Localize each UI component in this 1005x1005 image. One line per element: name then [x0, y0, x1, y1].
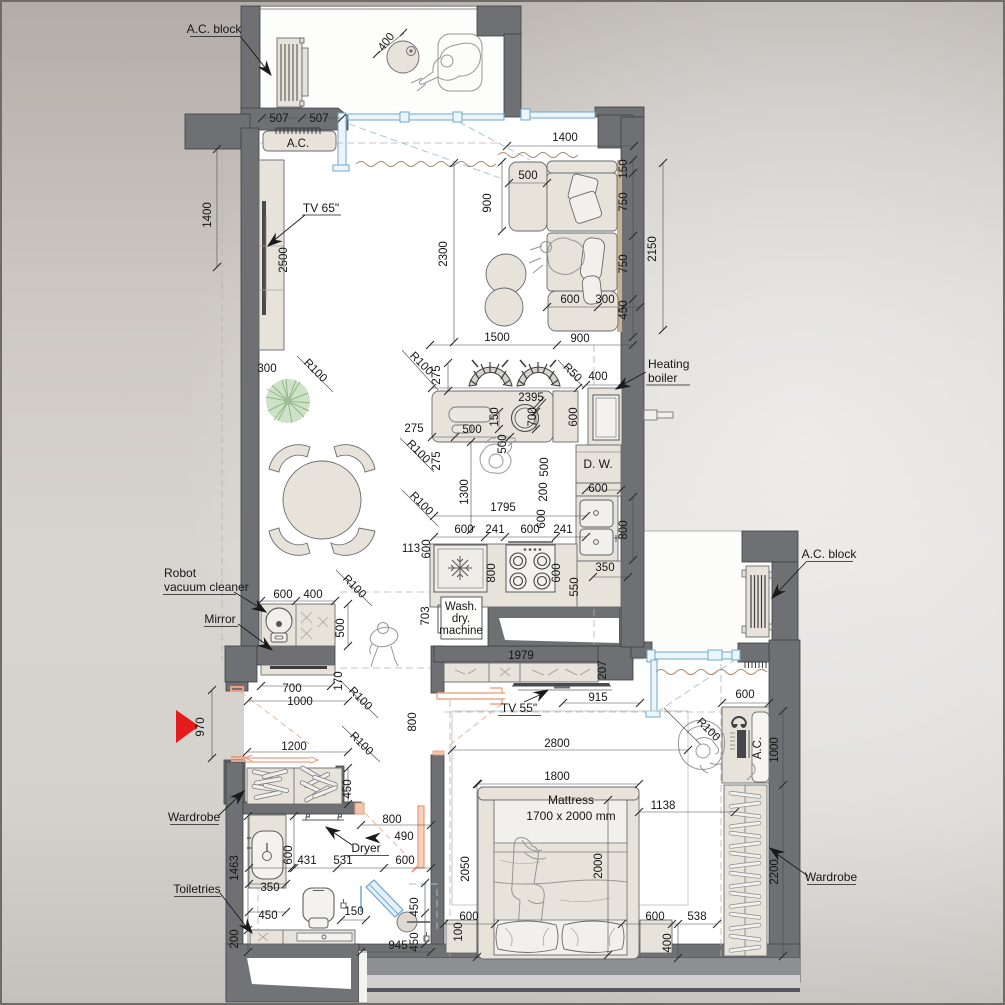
svg-text:431: 431: [297, 855, 316, 867]
svg-text:703: 703: [420, 606, 432, 625]
svg-text:2050: 2050: [460, 856, 472, 882]
svg-text:600: 600: [568, 407, 580, 426]
svg-text:600: 600: [273, 589, 292, 601]
svg-text:1138: 1138: [651, 800, 676, 812]
svg-text:150: 150: [489, 407, 501, 426]
svg-text:970: 970: [195, 717, 207, 736]
svg-text:500: 500: [335, 618, 347, 637]
svg-text:400: 400: [303, 589, 322, 601]
svg-text:500: 500: [462, 424, 481, 436]
svg-text:300: 300: [257, 363, 276, 375]
svg-text:750: 750: [618, 192, 630, 211]
svg-text:2200: 2200: [769, 859, 781, 885]
svg-text:A.C. block: A.C. block: [802, 547, 858, 561]
svg-text:A.C. block: A.C. block: [187, 22, 243, 36]
svg-text:Toiletries: Toiletries: [173, 882, 220, 896]
svg-text:507: 507: [309, 113, 328, 125]
svg-text:machine: machine: [439, 625, 482, 637]
svg-text:207: 207: [597, 660, 609, 679]
svg-text:450: 450: [409, 932, 421, 951]
svg-text:Heating: Heating: [648, 357, 689, 371]
svg-text:vacuum cleaner: vacuum cleaner: [164, 580, 249, 594]
svg-text:2395: 2395: [518, 392, 544, 404]
svg-text:600: 600: [454, 524, 473, 536]
svg-text:600: 600: [459, 911, 478, 923]
svg-text:800: 800: [407, 712, 419, 731]
svg-text:170: 170: [333, 671, 345, 690]
svg-text:800: 800: [486, 563, 498, 582]
svg-text:A.C.: A.C.: [287, 138, 309, 150]
svg-text:Wardrobe: Wardrobe: [168, 810, 221, 824]
svg-text:1200: 1200: [281, 741, 307, 753]
svg-text:700: 700: [527, 407, 539, 426]
svg-text:275: 275: [404, 423, 423, 435]
svg-text:750: 750: [618, 254, 630, 273]
svg-text:241: 241: [553, 524, 572, 536]
svg-text:Wardrobe: Wardrobe: [805, 870, 858, 884]
svg-text:900: 900: [570, 333, 589, 345]
svg-text:1463: 1463: [229, 855, 241, 881]
svg-text:1400: 1400: [202, 202, 214, 228]
svg-text:900: 900: [482, 193, 494, 212]
svg-text:D. W.: D. W.: [583, 457, 612, 471]
svg-text:1795: 1795: [490, 502, 516, 514]
svg-text:600: 600: [588, 483, 607, 495]
svg-text:Dryer: Dryer: [351, 841, 380, 855]
svg-text:200: 200: [229, 929, 241, 948]
svg-text:915: 915: [588, 692, 607, 704]
svg-text:1000: 1000: [769, 737, 781, 763]
svg-text:490: 490: [394, 831, 413, 843]
svg-text:2150: 2150: [647, 236, 659, 262]
svg-text:600: 600: [536, 509, 548, 528]
svg-text:600: 600: [283, 845, 295, 864]
svg-text:275: 275: [431, 451, 443, 470]
svg-text:400: 400: [588, 371, 607, 383]
svg-text:1700 x 2000 mm: 1700 x 2000 mm: [526, 809, 615, 823]
svg-text:700: 700: [282, 683, 301, 695]
svg-text:450: 450: [618, 300, 630, 319]
svg-text:538: 538: [687, 911, 706, 923]
svg-text:100: 100: [453, 922, 465, 941]
svg-text:Robot: Robot: [164, 566, 197, 580]
svg-text:TV 55": TV 55": [501, 701, 537, 715]
svg-text:A.C.: A.C.: [752, 737, 764, 759]
svg-text:2000: 2000: [593, 853, 605, 879]
svg-text:531: 531: [333, 855, 352, 867]
svg-text:300: 300: [595, 294, 614, 306]
svg-text:450: 450: [258, 910, 277, 922]
svg-text:350: 350: [260, 882, 279, 894]
svg-text:Wash.: Wash.: [445, 601, 477, 613]
svg-text:2800: 2800: [544, 738, 570, 750]
svg-text:600: 600: [735, 689, 754, 701]
svg-text:600: 600: [645, 911, 664, 923]
svg-text:241: 241: [485, 524, 504, 536]
svg-text:800: 800: [618, 520, 630, 539]
svg-text:450: 450: [342, 779, 354, 798]
svg-text:945: 945: [388, 940, 407, 952]
svg-text:150: 150: [618, 159, 630, 178]
svg-text:600: 600: [560, 294, 579, 306]
svg-text:1979: 1979: [508, 650, 534, 662]
svg-text:600: 600: [395, 855, 414, 867]
svg-text:500: 500: [539, 457, 551, 476]
svg-text:350: 350: [595, 562, 614, 574]
svg-text:Mattress: Mattress: [548, 793, 594, 807]
svg-text:507: 507: [269, 113, 288, 125]
svg-text:Mirror: Mirror: [204, 612, 235, 626]
svg-text:2500: 2500: [278, 247, 290, 273]
svg-text:600: 600: [421, 539, 433, 558]
svg-text:500: 500: [518, 170, 537, 182]
svg-text:550: 550: [569, 577, 581, 596]
svg-text:113: 113: [402, 543, 420, 555]
svg-text:1500: 1500: [484, 332, 510, 344]
svg-text:400: 400: [662, 933, 674, 952]
svg-text:600: 600: [551, 563, 563, 582]
svg-text:200: 200: [538, 482, 550, 501]
svg-text:1400: 1400: [552, 132, 578, 144]
svg-text:500: 500: [497, 434, 509, 453]
svg-text:1800: 1800: [544, 771, 570, 783]
svg-text:150: 150: [344, 906, 363, 918]
svg-text:TV 65": TV 65": [303, 201, 339, 215]
svg-text:2300: 2300: [438, 241, 450, 267]
svg-text:800: 800: [382, 814, 401, 826]
svg-text:450: 450: [409, 897, 421, 916]
svg-text:boiler: boiler: [648, 371, 677, 385]
svg-text:dry.: dry.: [452, 613, 470, 625]
svg-text:1000: 1000: [287, 696, 313, 708]
svg-text:1300: 1300: [459, 479, 471, 505]
